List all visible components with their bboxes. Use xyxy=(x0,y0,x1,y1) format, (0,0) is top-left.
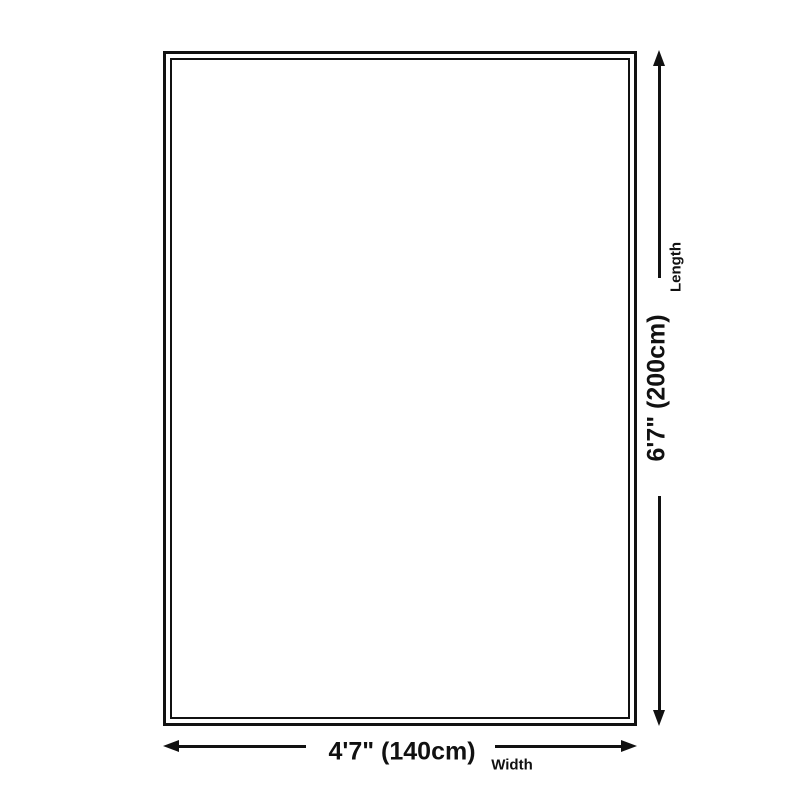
width-dimension-line-right xyxy=(495,745,622,748)
length-dimension-label: Length xyxy=(669,242,684,292)
dimension-diagram: 6'7" (200cm) Length 4'7" (140cm) Width xyxy=(0,0,800,800)
arrow-left-icon xyxy=(163,740,179,752)
product-outline xyxy=(163,51,637,726)
product-outline-inner-border xyxy=(170,58,630,719)
width-dimension-label: Width xyxy=(491,758,533,773)
width-dimension-value: 4'7" (140cm) xyxy=(328,740,475,765)
arrow-down-icon xyxy=(653,710,665,726)
arrow-right-icon xyxy=(621,740,637,752)
length-dimension-line-bottom xyxy=(658,496,661,714)
length-dimension-line-top xyxy=(658,62,661,278)
width-dimension-line-left xyxy=(178,745,306,748)
length-dimension-value: 6'7" (200cm) xyxy=(645,314,670,461)
